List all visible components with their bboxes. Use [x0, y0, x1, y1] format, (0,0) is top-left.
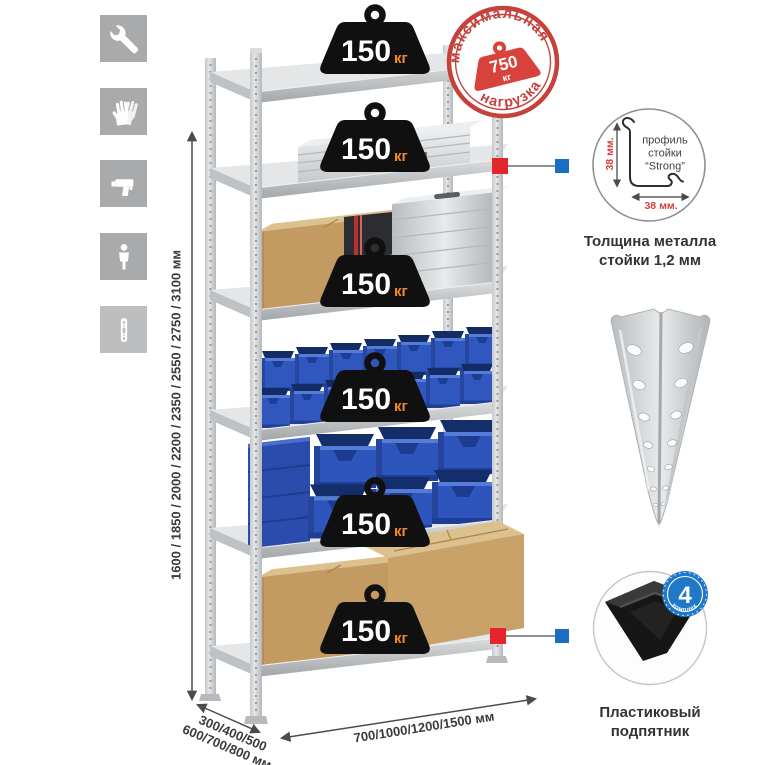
foot-caption: Пластиковый подпятник [599, 703, 700, 741]
svg-text:150: 150 [341, 508, 391, 541]
callout-red-square-bottom [490, 628, 506, 644]
kit-badge: 4 в комплекте [662, 571, 708, 617]
callout-blue-square-bottom [555, 629, 569, 643]
callout-red-square-top [492, 158, 508, 174]
svg-text:кг: кг [394, 630, 408, 647]
profile-label-line1: профиль [642, 135, 688, 148]
height-dimension-label: 1600 / 1850 / 2000 / 2200 / 2350 / 2550 … [169, 250, 184, 580]
profile-caption: Толщина металла стойки 1,2 мм [584, 232, 716, 270]
svg-text:кг: кг [394, 523, 408, 540]
wrench-icon [100, 15, 147, 62]
foot-caption-line1: Пластиковый [599, 703, 700, 722]
back-left-post [205, 58, 216, 694]
weight-value: 150 [341, 35, 391, 68]
max-load-stamp: 750 кг максимальная нагрузка [437, 0, 569, 128]
drill-icon [100, 160, 147, 207]
foot-caption-line2: подпятник [599, 722, 700, 741]
angle-post-image [611, 309, 710, 525]
callout-foot [490, 628, 569, 644]
callout-blue-square-top [555, 159, 569, 173]
profile-caption-line2: стойки 1,2 мм [584, 251, 716, 270]
weight-unit: кг [394, 50, 408, 67]
person-height-icon [100, 233, 147, 280]
svg-text:кг: кг [394, 283, 408, 300]
perforated-post-icon [100, 306, 147, 353]
plastic-foot-detail: 4 в комплекте [594, 571, 709, 685]
kit-badge-value: 4 [678, 582, 692, 609]
svg-text:кг: кг [394, 398, 408, 415]
gloves-icon [100, 88, 147, 135]
svg-text:150: 150 [341, 133, 391, 166]
profile-dim-vertical: 38 мм. [604, 137, 616, 170]
svg-text:150: 150 [341, 383, 391, 416]
weight-badge-1: 150 кг [320, 8, 430, 75]
weight-badge-2: 150 кг [320, 106, 430, 173]
profile-dim-horizontal: 38 мм. [644, 200, 677, 212]
profile-caption-line1: Толщина металла [584, 232, 716, 251]
svg-text:150: 150 [341, 268, 391, 301]
profile-label-line3: “Strong” [642, 161, 688, 174]
svg-text:кг: кг [394, 148, 408, 165]
callout-profile [492, 158, 569, 174]
profile-label-line2: стойки [642, 148, 688, 161]
back-left-foot [199, 694, 221, 701]
svg-text:150: 150 [341, 615, 391, 648]
infographic-canvas: 150 кг 150 кг 150 кг 150 кг 150 кг [0, 0, 765, 765]
